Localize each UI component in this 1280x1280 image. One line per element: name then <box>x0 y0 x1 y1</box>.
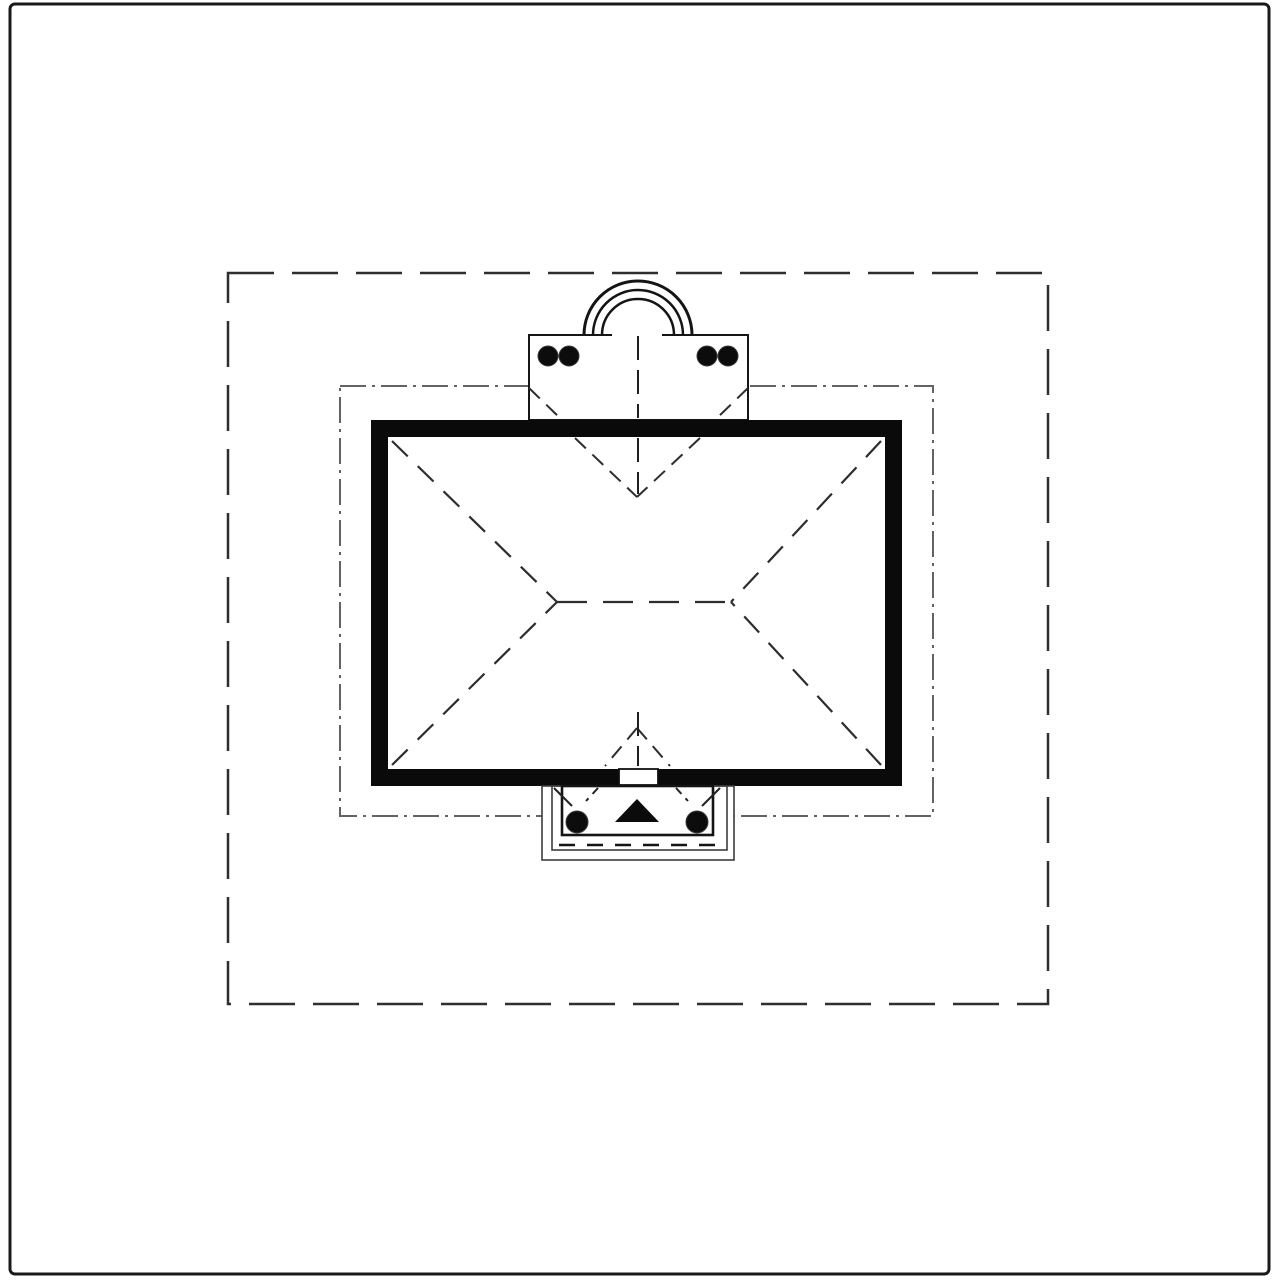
portico-column-2 <box>559 346 579 366</box>
roof-plane <box>388 437 885 769</box>
portico-column-3 <box>697 346 717 366</box>
roof-plan-page <box>0 0 1280 1280</box>
stoop-column-left <box>566 811 588 833</box>
roof-plan-canvas <box>0 0 1280 1280</box>
door-opening <box>619 769 658 785</box>
portico-arch-middle-icon <box>593 290 683 335</box>
portico-arch-inner-icon <box>602 299 674 335</box>
stoop-column-right <box>686 811 708 833</box>
portico-column-4 <box>718 346 738 366</box>
portico-column-1 <box>538 346 558 366</box>
